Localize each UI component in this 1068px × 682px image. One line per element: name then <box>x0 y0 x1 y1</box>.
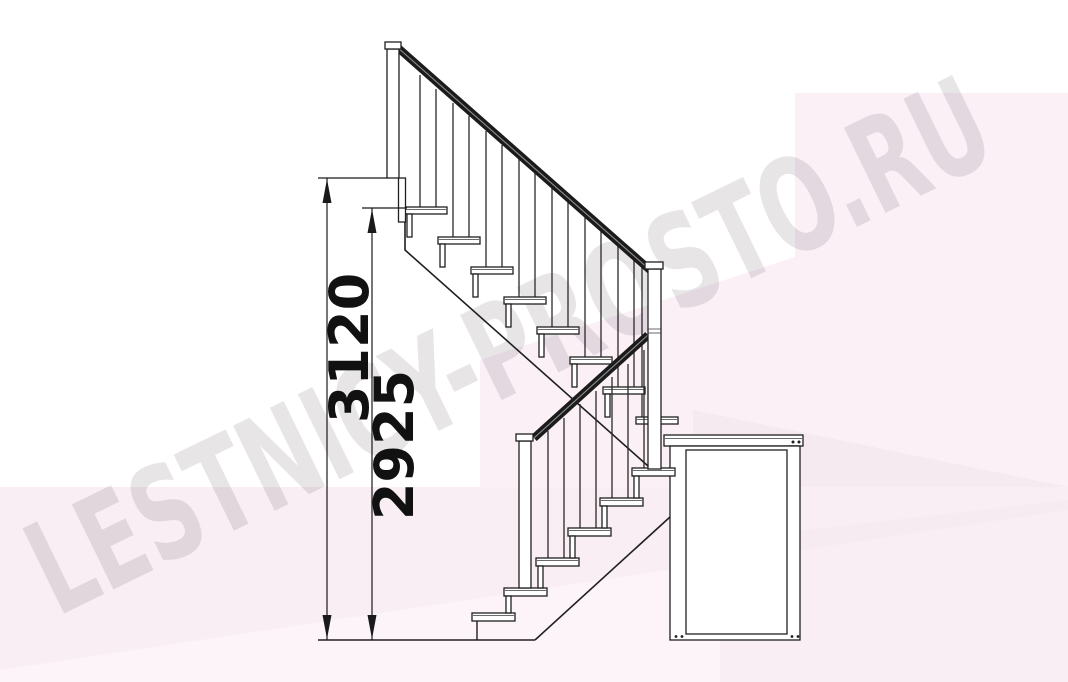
step-connector <box>473 274 478 297</box>
step-connector <box>539 334 544 357</box>
step-connector <box>407 214 412 237</box>
tread <box>603 387 645 394</box>
tread <box>570 357 612 364</box>
step-connector <box>506 596 511 613</box>
tread <box>405 207 447 214</box>
handrail-upper-highlight <box>397 47 650 270</box>
screw-dot <box>681 635 684 638</box>
screw-dot <box>797 635 800 638</box>
step-connector <box>572 364 577 387</box>
tread <box>504 588 547 596</box>
turn-post-cap <box>645 262 663 269</box>
tread <box>536 558 579 566</box>
first-tread-support-post <box>399 178 406 222</box>
landing-platform-slab <box>664 435 803 446</box>
top-newel-post <box>387 49 399 178</box>
tread <box>537 327 579 334</box>
lower-newel-post <box>519 441 531 588</box>
step-connector <box>440 244 445 267</box>
screw-dot <box>791 635 794 638</box>
arrow-up <box>368 209 377 233</box>
arrow-up <box>323 179 332 203</box>
screw-dot <box>675 635 678 638</box>
turn-post-group <box>645 262 663 469</box>
screw-dot <box>798 441 801 444</box>
technical-drawing-page: LESTNICY-PROSTO.RU <box>0 0 1068 682</box>
tread <box>472 613 515 621</box>
lower-newel-post-cap <box>516 434 533 441</box>
step-connector <box>605 394 610 417</box>
staircase-technical-drawing: LESTNICY-PROSTO.RU <box>0 0 1068 682</box>
screw-dot <box>792 441 795 444</box>
step-connector <box>570 536 575 558</box>
tread <box>568 528 611 536</box>
turn-post <box>648 269 661 469</box>
top-newel-post-cap <box>385 42 401 49</box>
tread <box>471 267 513 274</box>
tread <box>504 297 546 304</box>
dimension-label-2925: 2925 <box>363 370 426 520</box>
step-connector <box>634 476 639 498</box>
step-connector <box>602 506 607 528</box>
frame-inner <box>686 450 787 634</box>
step-connector <box>538 566 543 588</box>
step-connector <box>506 304 511 327</box>
tread <box>438 237 480 244</box>
tread <box>600 498 643 506</box>
